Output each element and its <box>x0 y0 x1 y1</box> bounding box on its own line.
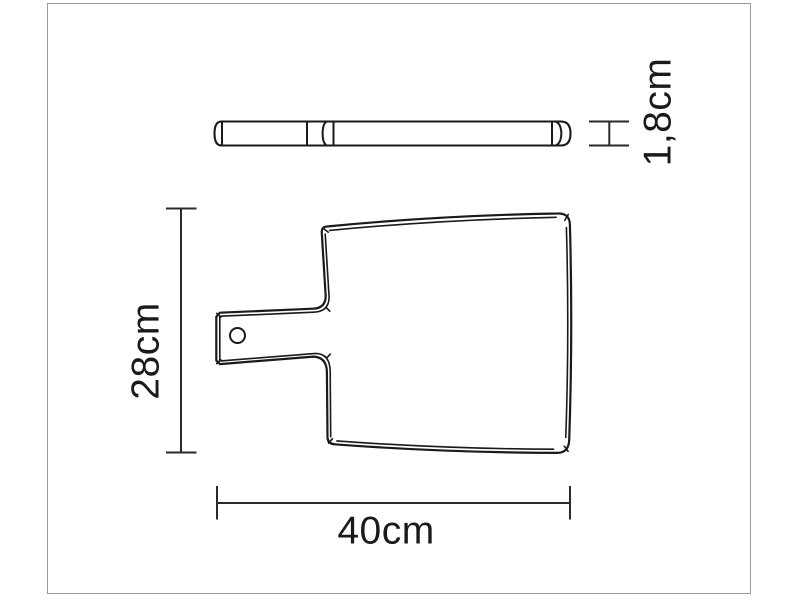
board-inner-bevel-lines <box>220 217 568 449</box>
top-view <box>216 213 571 452</box>
screenshot-canvas: 40cm 28cm 1,8cm <box>0 0 800 600</box>
thickness-dimension-label: 1,8cm <box>639 58 678 167</box>
side-view <box>215 122 571 146</box>
board-outer-outline <box>216 213 571 452</box>
thickness-dimension-line <box>589 122 629 146</box>
chamfer-tick-handle-bottom-fillet <box>327 354 331 358</box>
width-dimension-label: 40cm <box>337 512 434 551</box>
height-dimension-label: 28cm <box>127 302 166 399</box>
side-view-outline <box>215 122 571 146</box>
height-dimension-line <box>166 209 197 453</box>
bevel-handle-top-and-left-upper <box>221 234 329 316</box>
board-corner-chamfer-ticks <box>217 214 569 451</box>
bevel-bottom-edge <box>337 441 554 449</box>
bevel-left-lower-and-handle-bottom <box>221 353 331 436</box>
side-view-right-cap-arc <box>557 122 562 145</box>
chamfer-tick-top-left <box>323 228 329 232</box>
chamfer-tick-handle-top-fillet <box>326 308 330 312</box>
bevel-right-edge <box>566 228 568 438</box>
handle-hole <box>230 328 245 343</box>
side-view-handle-joint-arc <box>323 122 326 145</box>
